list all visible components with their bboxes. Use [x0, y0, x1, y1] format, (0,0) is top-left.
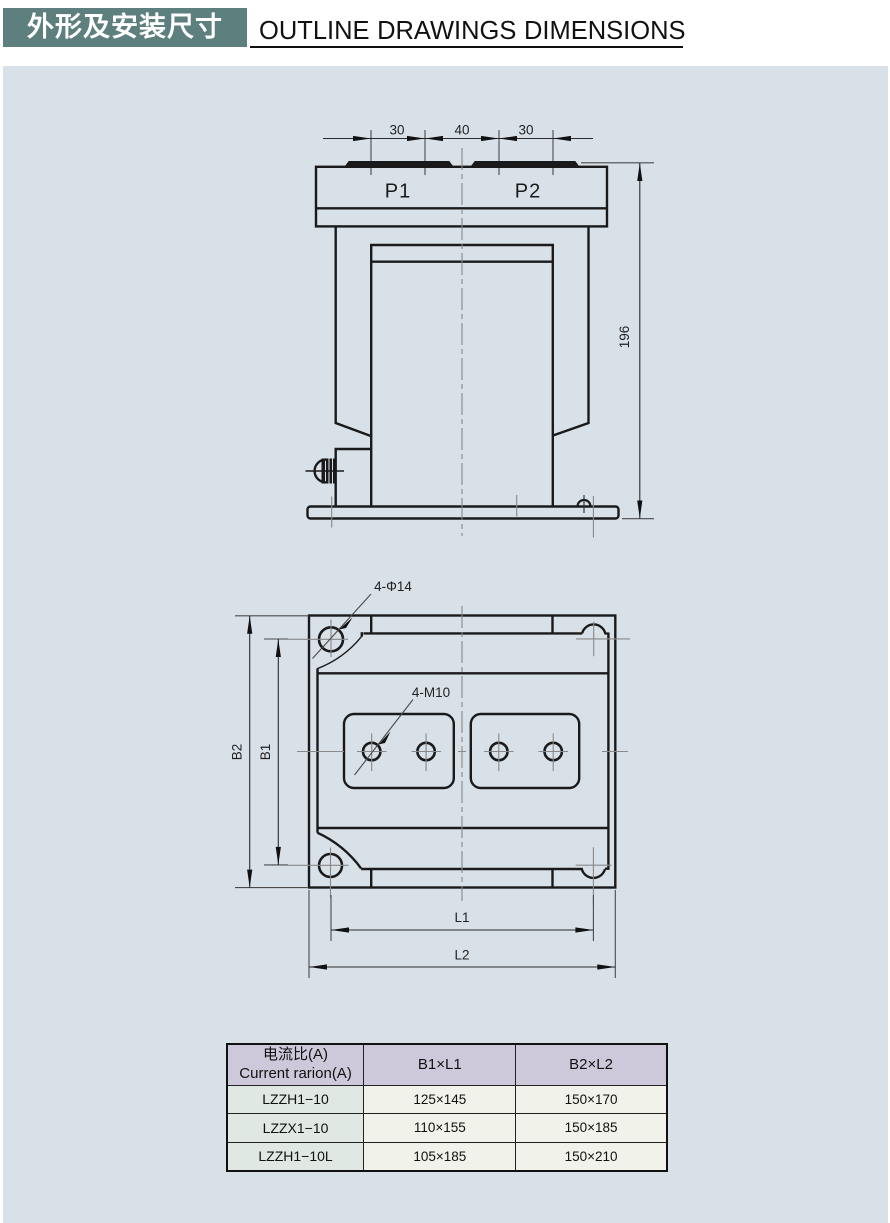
svg-text:30: 30: [389, 123, 404, 138]
svg-text:4-M10: 4-M10: [412, 685, 450, 700]
svg-text:P1: P1: [385, 181, 411, 203]
svg-text:30: 30: [518, 123, 533, 138]
svg-text:40: 40: [454, 123, 469, 138]
svg-text:4-Φ14: 4-Φ14: [374, 579, 412, 594]
svg-text:L1: L1: [454, 910, 469, 925]
svg-text:P2: P2: [515, 181, 541, 203]
svg-text:196: 196: [617, 326, 632, 349]
svg-text:B2: B2: [230, 744, 245, 761]
svg-text:L2: L2: [454, 948, 469, 963]
svg-text:B1: B1: [258, 744, 273, 761]
